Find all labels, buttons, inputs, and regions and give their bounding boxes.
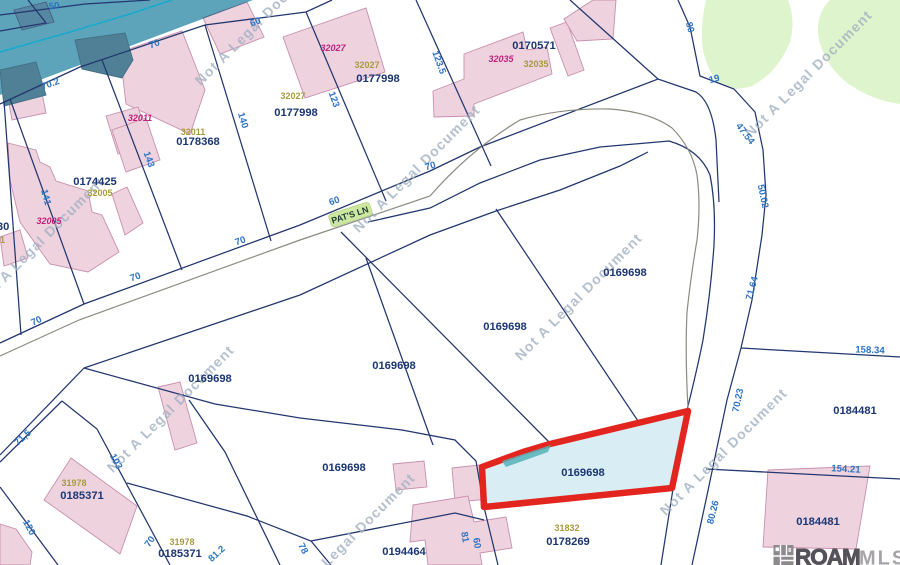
svg-text:31978: 31978 xyxy=(61,478,86,488)
svg-text:0184481: 0184481 xyxy=(796,516,840,528)
svg-text:60: 60 xyxy=(470,537,483,549)
svg-text:0169698: 0169698 xyxy=(561,467,605,479)
svg-text:31832: 31832 xyxy=(554,523,579,533)
svg-text:ROAM: ROAM xyxy=(795,545,860,565)
svg-text:32005: 32005 xyxy=(36,216,62,226)
svg-text:32011: 32011 xyxy=(181,127,206,137)
svg-text:32027: 32027 xyxy=(354,60,379,70)
svg-text:32035: 32035 xyxy=(523,59,548,69)
svg-text:32035: 32035 xyxy=(488,54,514,64)
svg-text:730: 730 xyxy=(0,221,9,233)
svg-text:32027: 32027 xyxy=(320,43,346,53)
svg-text:MLS: MLS xyxy=(859,548,900,565)
svg-text:0169698: 0169698 xyxy=(372,360,416,372)
svg-text:0177998: 0177998 xyxy=(274,107,318,119)
svg-text:32005: 32005 xyxy=(87,188,112,198)
svg-text:32011: 32011 xyxy=(128,113,152,123)
svg-text:01: 01 xyxy=(0,235,5,245)
svg-text:0169698: 0169698 xyxy=(188,373,232,385)
svg-text:0178368: 0178368 xyxy=(176,136,220,148)
svg-text:0178269: 0178269 xyxy=(546,536,590,548)
svg-text:158.34: 158.34 xyxy=(855,344,885,356)
svg-text:31978: 31978 xyxy=(169,537,194,547)
svg-text:0174425: 0174425 xyxy=(73,176,117,188)
svg-text:0170571: 0170571 xyxy=(512,40,556,52)
svg-text:0194464: 0194464 xyxy=(382,546,426,558)
svg-text:0185371: 0185371 xyxy=(60,490,104,502)
svg-text:50: 50 xyxy=(48,0,60,12)
svg-text:0169698: 0169698 xyxy=(322,462,366,474)
svg-text:32027: 32027 xyxy=(280,91,305,101)
svg-text:0185371: 0185371 xyxy=(158,548,202,560)
svg-text:0177998: 0177998 xyxy=(356,73,400,85)
svg-text:154.21: 154.21 xyxy=(831,463,862,476)
svg-text:0184481: 0184481 xyxy=(833,405,877,417)
svg-text:0169698: 0169698 xyxy=(483,321,527,333)
svg-text:0169698: 0169698 xyxy=(603,267,647,279)
